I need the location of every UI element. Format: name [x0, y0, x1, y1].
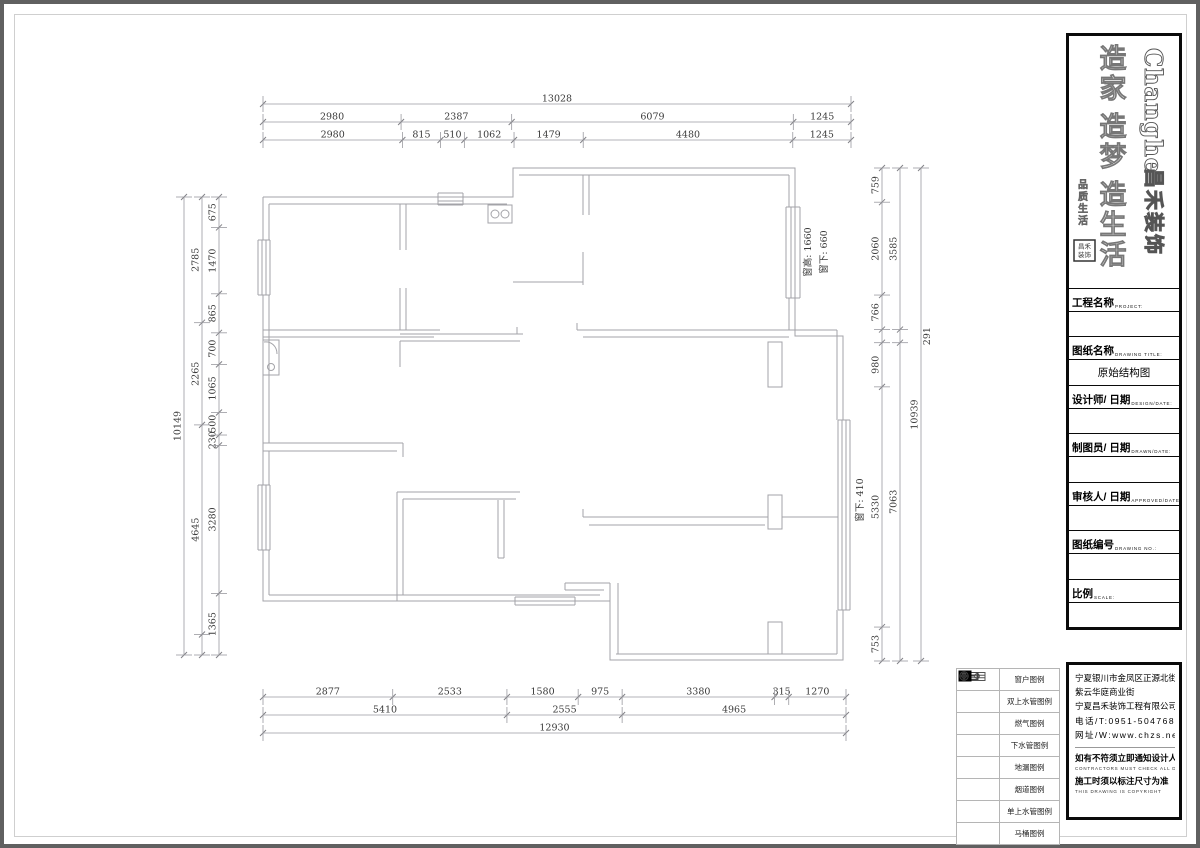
field-value	[1069, 554, 1179, 578]
dim-label: 3380	[686, 687, 710, 698]
phone-line: 电话/T:0951-5047688	[1075, 714, 1175, 728]
dim-label: 675	[208, 203, 219, 221]
legend-label: 地漏图例	[1000, 757, 1059, 778]
dim-label: 2785	[191, 248, 202, 272]
single-water-pipe-icon	[957, 801, 1000, 822]
dim-label: 2387	[444, 112, 468, 123]
dim-label: 1580	[530, 687, 554, 698]
window-symbol-left-upper	[258, 240, 270, 295]
water-heater-icon	[263, 340, 279, 375]
dim-label: 291	[922, 327, 933, 345]
field-value	[1069, 506, 1179, 530]
dim-label: 1479	[537, 130, 561, 141]
dim-label: 12930	[539, 723, 569, 734]
dim-label: 1062	[477, 130, 501, 141]
dim-label: 13028	[542, 94, 572, 105]
legend-label: 单上水管图例	[1000, 801, 1059, 822]
note1-en: CONTRACTORS MUST CHECK ALL DIMENSIONS	[1075, 764, 1175, 773]
slogan-character: 活	[1100, 240, 1127, 271]
legend-label: 燃气图例	[1000, 713, 1059, 734]
field-drafter: 制图员/ 日期DRAWN/DATE:	[1069, 434, 1179, 482]
pillar-stubs	[768, 342, 782, 654]
floor-drain-icon	[957, 757, 1000, 778]
logo-wordmark-en: Changhe	[1139, 48, 1168, 174]
field-drawing-no: 图纸编号DRAWING NO.:	[1069, 531, 1179, 579]
toilet-icon	[957, 823, 1000, 844]
field-value	[1069, 457, 1179, 481]
stove-icon	[488, 205, 512, 223]
dim-label: 500	[208, 415, 219, 433]
title-block: Changhe昌禾装饰造家造梦造生活品质生活昌禾装饰 工程名称PROJECT: …	[1066, 33, 1182, 630]
address-line-1: 宁夏银川市金凤区正源北街	[1075, 671, 1175, 685]
dim-label: 980	[871, 356, 882, 374]
changhe-logo: Changhe昌禾装饰造家造梦造生活品质生活昌禾装饰	[1069, 36, 1179, 287]
drain-pipe-icon	[957, 735, 1000, 756]
field-project: 工程名称PROJECT:	[1069, 289, 1179, 337]
field-value	[1069, 603, 1179, 627]
dim-label: 230	[208, 431, 219, 449]
annotation-layer: 窗高: 1660 窗下: 660 窗下: 410	[802, 227, 866, 521]
floorplan-sheet: 1302829802387607912452980815510106214794…	[0, 0, 1200, 848]
field-approver: 审核人/ 日期APPROVED/DATE:	[1069, 483, 1179, 531]
legend-row: 烟道图例	[957, 779, 1059, 801]
window-symbol-top	[438, 193, 463, 205]
dim-label: 815	[412, 130, 430, 141]
field-drawing-title: 图纸名称DRAWING TITLE: 原始结构图	[1069, 337, 1179, 385]
dim-label: 1270	[805, 687, 829, 698]
dim-label: 2555	[552, 705, 576, 716]
seal-text: 昌禾	[1078, 243, 1092, 251]
field-designer: 设计师/ 日期DESIGN/DATE:	[1069, 386, 1179, 434]
note2-en: THIS DRAWING IS COPYRIGHT	[1075, 787, 1175, 796]
dim-label: 5410	[373, 705, 397, 716]
legend-row: 马桶图例	[957, 823, 1059, 844]
note1-cn: 如有不符须立即通知设计人员	[1075, 752, 1175, 764]
field-label-cn: 图纸名称	[1072, 343, 1114, 358]
legend-row: 下水管图例	[957, 735, 1059, 757]
dim-label: 1245	[810, 130, 834, 141]
field-scale: 比例SCALE:	[1069, 580, 1179, 627]
dim-label: 10149	[173, 411, 184, 441]
dim-label: 2877	[316, 687, 340, 698]
window-sill2-annotation: 窗下: 410	[854, 478, 866, 521]
slogan-character: 生	[1100, 210, 1127, 241]
interior-walls	[263, 175, 838, 654]
dim-label: 700	[208, 340, 219, 358]
legend-row: 地漏图例	[957, 757, 1059, 779]
slogan-small-character: 质	[1078, 190, 1088, 203]
dim-label: 510	[443, 130, 461, 141]
wall-layer	[258, 168, 850, 660]
legend-row: 燃气图例	[957, 713, 1059, 735]
slogan-character: 家	[1100, 73, 1127, 105]
dimension-layer: 1302829802387607912452980815510106214794…	[173, 94, 934, 742]
drawing-title-value: 原始结构图	[1069, 360, 1179, 384]
dim-label: 2533	[438, 687, 462, 698]
window-symbol-right-upper	[786, 207, 800, 298]
window-symbol-left-lower	[258, 485, 270, 550]
legend-label: 烟道图例	[1000, 779, 1059, 800]
window-height-annotation: 窗高: 1660	[802, 227, 814, 276]
field-label-cn: 制图员/ 日期	[1072, 440, 1130, 455]
legend-label: 马桶图例	[1000, 823, 1059, 844]
dim-label: 1065	[208, 376, 219, 400]
slogan-character: 造	[1100, 112, 1127, 143]
dim-label: 865	[208, 304, 219, 322]
dim-label: 759	[871, 176, 882, 194]
dim-label: 10939	[910, 399, 921, 429]
dim-label: 2060	[871, 237, 882, 261]
slogan-small-character: 品	[1078, 179, 1088, 191]
field-label-en: DRAWN/DATE:	[1131, 449, 1171, 455]
dim-label: 7063	[889, 490, 900, 514]
outer-walls	[263, 168, 843, 660]
field-label-cn: 图纸编号	[1072, 537, 1114, 552]
field-label-cn: 比例	[1072, 586, 1093, 601]
logo-area: Changhe昌禾装饰造家造梦造生活品质生活昌禾装饰	[1069, 36, 1179, 289]
slogan-character: 造	[1100, 180, 1127, 211]
field-label-en: DESIGN/DATE:	[1131, 401, 1172, 407]
window-symbol-bottom	[515, 597, 575, 605]
slogan-small-character: 生	[1078, 202, 1088, 215]
slogan-small-character: 活	[1078, 214, 1088, 227]
inner-wall-faces	[269, 175, 837, 654]
slogan-character: 梦	[1100, 142, 1127, 173]
double-water-pipe-icon	[957, 691, 1000, 712]
field-label-en: SCALE:	[1094, 595, 1115, 601]
dim-label: 975	[591, 687, 609, 698]
window-sill-annotation: 窗下: 660	[818, 230, 830, 273]
dim-label: 4965	[722, 705, 746, 716]
field-label-en: DRAWING TITLE:	[1115, 352, 1162, 358]
legend-row: 双上水管图例	[957, 691, 1059, 713]
dim-label: 1245	[810, 112, 834, 123]
field-value	[1069, 312, 1179, 336]
dim-label: 3585	[889, 237, 900, 261]
website-line: 网址/W:www.chzs.net	[1075, 728, 1175, 742]
dim-label: 2980	[320, 112, 344, 123]
legend-label: 下水管图例	[1000, 735, 1059, 756]
legend-label: 窗户图例	[1000, 669, 1059, 690]
field-label-cn: 工程名称	[1072, 295, 1114, 310]
field-label-en: APPROVED/DATE:	[1131, 498, 1179, 504]
dim-label: 6079	[640, 112, 664, 123]
legend-table: 窗户图例 双上水管图例 燃气图例 下水管图例 地漏图例	[956, 668, 1060, 845]
dim-label: 5330	[871, 495, 882, 519]
slogan-character: 造	[1100, 44, 1127, 75]
dim-label: 753	[871, 635, 882, 653]
field-label-cn: 审核人/ 日期	[1072, 489, 1130, 504]
info-divider	[1075, 747, 1175, 748]
dim-label: 1365	[208, 612, 219, 636]
field-value	[1069, 409, 1179, 433]
dim-label: 4645	[191, 518, 202, 542]
logo-wordmark-cn: 昌禾装饰	[1142, 168, 1166, 256]
dim-label: 4480	[676, 130, 700, 141]
company-name: 宁夏昌禾装饰工程有限公司	[1075, 699, 1175, 713]
dim-label: 2265	[191, 362, 202, 386]
seal-text: 装饰	[1078, 250, 1092, 259]
gas-icon	[957, 713, 1000, 734]
field-label-cn: 设计师/ 日期	[1072, 392, 1130, 407]
dim-label: 1470	[208, 249, 219, 273]
legend-label: 双上水管图例	[1000, 691, 1059, 712]
window-symbol-right-lower	[838, 420, 850, 610]
flue-icon	[957, 779, 1000, 800]
dim-label: 766	[871, 303, 882, 321]
field-label-en: PROJECT:	[1115, 304, 1143, 310]
dim-label: 3280	[208, 507, 219, 531]
field-label-en: DRAWING NO.:	[1115, 546, 1157, 552]
legend-row: 单上水管图例	[957, 801, 1059, 823]
dim-label: 2980	[321, 130, 345, 141]
address-line-2: 紫云华庭商业街	[1075, 685, 1175, 699]
company-info-block: 宁夏银川市金凤区正源北街 紫云华庭商业街 宁夏昌禾装饰工程有限公司 电话/T:0…	[1066, 662, 1182, 820]
note2-cn: 施工时须以标注尺寸为准	[1075, 775, 1175, 787]
